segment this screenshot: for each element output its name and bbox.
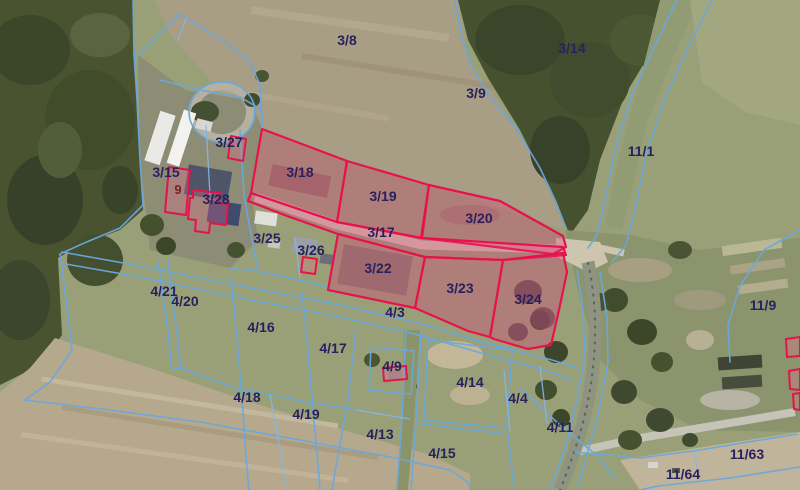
parcel-label-3-24: 3/24	[514, 291, 541, 307]
building-east-2-outline	[789, 369, 800, 390]
parcel-label-4-17: 4/17	[319, 340, 346, 356]
parcel-label-4-19: 4/19	[292, 406, 319, 422]
parcel-label-4-18: 4/18	[233, 389, 260, 405]
map-viewport[interactable]: 3/83/143/911/13/273/153/1893/193/283/203…	[0, 0, 800, 490]
building-3-26-outline	[301, 257, 317, 274]
parcel-label-4-11: 4/11	[547, 419, 574, 435]
parcel-label-4-15: 4/15	[428, 445, 455, 461]
parcel-label-3-14: 3/14	[558, 40, 585, 56]
parcel-label-3-20: 3/20	[465, 210, 492, 226]
parcel-label-3-26: 3/26	[297, 242, 324, 258]
parcel-label-3-23: 3/23	[446, 280, 473, 296]
parcel-label-4-4: 4/4	[508, 390, 528, 406]
parcel-label-4-16: 4/16	[247, 319, 274, 335]
parcel-label-3-28: 3/28	[202, 191, 229, 207]
building-label-9: 9	[174, 182, 181, 197]
parcel-label-4-14: 4/14	[456, 374, 483, 390]
parcel-label-4-9: 4/9	[382, 358, 402, 374]
parcel-label-11-64: 11/64	[666, 466, 700, 482]
parcel-label-3-25: 3/25	[253, 230, 280, 246]
parcel-label-4-13: 4/13	[366, 426, 393, 442]
parcel-label-3-22: 3/22	[364, 260, 391, 276]
map-canvas[interactable]: 3/83/143/911/13/273/153/1893/193/283/203…	[0, 0, 800, 490]
parcel-label-3-9: 3/9	[466, 85, 486, 101]
parcel-label-3-27: 3/27	[215, 134, 242, 150]
building-east-1-outline	[786, 337, 800, 357]
parcel-label-11-9: 11/9	[750, 297, 777, 313]
parcel-label-11-1: 11/1	[628, 143, 655, 159]
parcel-label-3-19: 3/19	[369, 188, 396, 204]
parcel-label-11-63: 11/63	[730, 446, 764, 462]
parcel-label-4-3: 4/3	[385, 304, 405, 320]
parcel-label-3-8: 3/8	[337, 32, 357, 48]
parcel-label-3-17: 3/17	[367, 224, 394, 240]
parcel-label-3-18: 3/18	[286, 164, 313, 180]
building-east-3-outline	[793, 393, 800, 410]
parcel-label-3-15: 3/15	[152, 164, 179, 180]
parcel-label-4-20: 4/20	[171, 293, 198, 309]
